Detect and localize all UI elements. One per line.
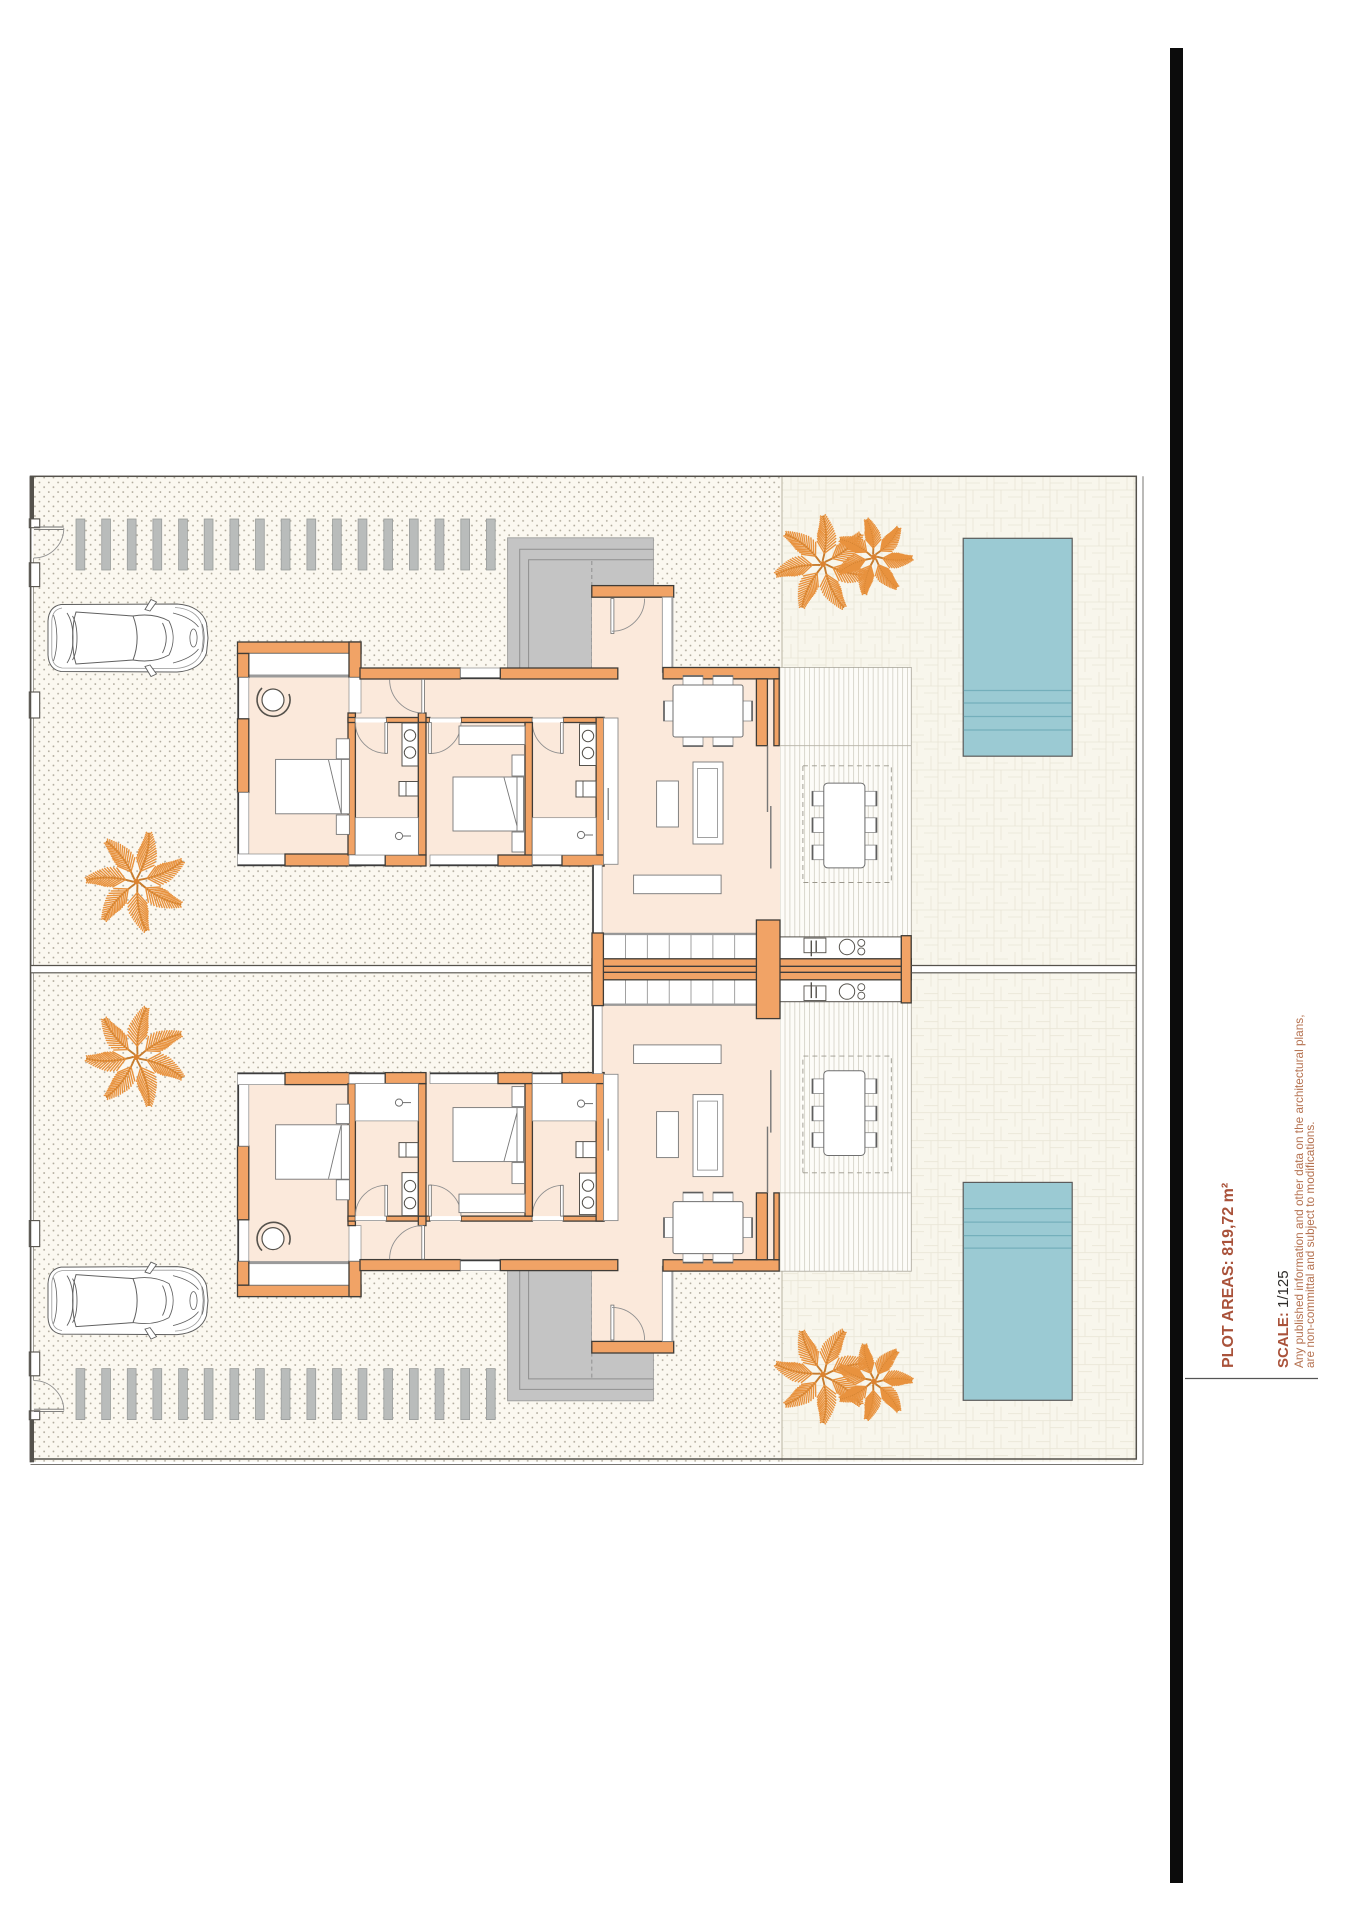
svg-text:are non-committal and subject: are non-committal and subject to modific… [1303, 1121, 1317, 1368]
svg-text:SCALE: 1/125: SCALE: 1/125 [1275, 1270, 1292, 1368]
svg-text:PLOT AREAS: 819,72 m²: PLOT AREAS: 819,72 m² [1220, 1183, 1237, 1368]
